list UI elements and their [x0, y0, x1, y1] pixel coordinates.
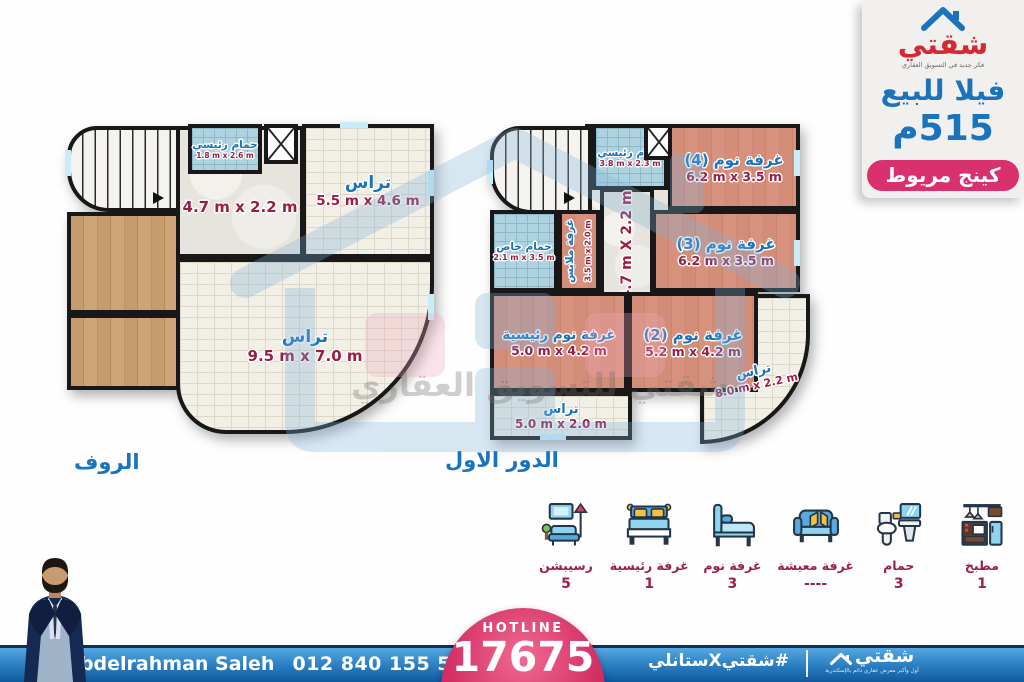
ff-corridor-dims: 4.7 m X 2.2 m	[619, 190, 635, 299]
legend-bathroom: حمام 3	[861, 500, 937, 592]
hotline-badge: HOTLINE 17675	[441, 608, 605, 682]
legend-row: رسيبشن 5 غرفة رئيسية 1 غرفة نوم 3 غرفة م…	[528, 500, 1020, 592]
legend-count: 3	[728, 576, 738, 592]
legend-icon	[956, 500, 1008, 552]
ff-terrace-bottom: تراس 5.0 m x 2.0 m	[490, 392, 632, 440]
legend-reception: رسيبشن 5	[528, 500, 604, 592]
ff-bedroom3-dims: 6.2 m x 3.5 m	[678, 253, 774, 268]
window	[340, 122, 368, 128]
footer-logo-name: شقتي	[855, 647, 914, 666]
ff-master-bedroom: غرفة نوم رئيسية 5.0 m x 4.2 m	[490, 292, 628, 392]
footer-divider	[806, 650, 808, 677]
roof-hall-dims: 4.7 m x 2.2 m	[180, 198, 300, 216]
legend-icon	[623, 500, 675, 552]
legend-icon	[706, 500, 758, 552]
ff-bedroom4: غرفة نوم (4) 6.2 m x 3.5 m	[668, 124, 800, 210]
roof-master-bath: حمام رئيسي 1.8 m x 2.6 m	[188, 124, 262, 174]
roof-master-bath-name: حمام رئيسي	[192, 139, 257, 151]
ff-bedroom4-name: غرفة نوم (4)	[684, 151, 783, 169]
campaign-hashtag: #شقتيXستانلي	[636, 651, 801, 671]
roof-staircase	[67, 126, 180, 212]
window	[794, 150, 800, 176]
legend-count: 1	[977, 576, 987, 592]
ff-bedroom2-dims: 5.2 m x 4.2 m	[645, 344, 741, 359]
location-badge: كينج مريوط	[867, 160, 1019, 191]
shaft-x-icon	[648, 128, 670, 156]
legend-label: غرفة رئيسية	[610, 558, 689, 573]
agent-photo	[4, 552, 104, 682]
shaft-x-icon	[268, 128, 294, 160]
first-floor-plan: حمام رئيسي 3.8 m x 2.3 m غرفة نوم (4) 6.…	[487, 116, 812, 450]
first-floor-plan-label: الدور الاول	[445, 448, 559, 472]
window	[428, 170, 434, 196]
roof-shaft	[264, 124, 298, 164]
roof-room-lower	[67, 314, 180, 390]
legend-icon	[540, 500, 592, 552]
legend-count: 5	[561, 576, 571, 592]
roof-room-upper	[67, 212, 180, 314]
roof-terrace-top: تراس 5.5 m x 4.6 m	[302, 124, 434, 258]
roof-terrace-top-name: تراس	[345, 173, 391, 193]
roof-terrace-big-name: تراس	[282, 327, 328, 347]
window	[540, 434, 566, 440]
ff-terrace-bottom-name: تراس	[543, 402, 578, 417]
logo-tagline: فكر جديد في التسويق العقاري	[902, 61, 984, 69]
legend-label: رسيبشن	[539, 558, 593, 573]
legend-label: حمام	[883, 558, 914, 573]
ff-dressing: غرفة ملابس 3.5 m x 2.0 m	[558, 210, 600, 292]
ff-bedroom4-dims: 6.2 m x 3.5 m	[686, 169, 782, 184]
roof-terrace-top-dims: 5.5 m x 4.6 m	[316, 193, 419, 209]
listing-area: 515م	[892, 109, 994, 149]
ff-bedroom3: غرفة نوم (3) 6.2 m x 3.5 m	[652, 210, 800, 292]
legend-count: 3	[894, 576, 904, 592]
ff-dressing-dims: 3.5 m x 2.0 m	[584, 220, 593, 281]
roof-terrace-big-dims: 9.5 m x 7.0 m	[248, 347, 363, 365]
roof-master-bath-dims: 1.8 m x 2.6 m	[196, 151, 253, 160]
agent-contact: Abdelrahman Saleh 012 840 155 56	[95, 648, 435, 679]
footer-logo: شقتي أول وأكبر معرض عقاري دائم بالإسكندر…	[820, 647, 924, 674]
ff-private-bath-dims: 2.1 m x 3.5 m	[493, 253, 554, 262]
logo-name: شقتي	[898, 30, 989, 59]
legend-single-bed: غرفة نوم 3	[694, 500, 770, 592]
agent-phone: 012 840 155 56	[292, 653, 464, 675]
legend-label: غرفة معيشة	[777, 558, 854, 573]
ff-staircase	[490, 126, 592, 214]
window	[794, 240, 800, 266]
ff-dressing-name: غرفة ملابس	[564, 219, 576, 283]
ff-private-bath-name: حمام خاص	[496, 241, 552, 253]
legend-kitchen: مطبخ 1	[944, 500, 1020, 592]
stairs-arrow-icon	[153, 192, 164, 204]
ff-bedroom3-name: غرفة نوم (3)	[676, 235, 775, 253]
header-card: شقتي فكر جديد في التسويق العقاري فيلا لل…	[862, 0, 1024, 198]
legend-label: غرفة نوم	[703, 558, 761, 573]
legend-count: 1	[644, 576, 654, 592]
flyer-page: 4.7 m x 2.2 m حمام رئيسي 1.8 m x 2.6 m ت…	[0, 0, 1024, 682]
ff-corridor: 4.7 m X 2.2 m	[600, 188, 654, 302]
footer-logo-tagline: أول وأكبر معرض عقاري دائم بالإسكندرية	[825, 668, 918, 674]
legend-icon	[873, 500, 925, 552]
listing-title: فيلا للبيع	[881, 76, 1006, 107]
window	[428, 294, 434, 320]
legend-label: مطبخ	[965, 558, 999, 573]
legend-count: ----	[804, 576, 827, 592]
window	[487, 160, 493, 184]
ff-terrace-bottom-dims: 5.0 m x 2.0 m	[515, 417, 607, 431]
hotline-number: 17675	[452, 637, 595, 678]
ff-master-bedroom-name: غرفة نوم رئيسية	[502, 327, 615, 343]
ff-bedroom2-name: غرفة نوم (2)	[643, 326, 742, 344]
roof-plan-label: الروف	[74, 450, 140, 474]
window	[65, 150, 71, 176]
stairs-arrow-icon	[564, 192, 575, 204]
ff-master-bedroom-dims: 5.0 m x 4.2 m	[511, 343, 607, 358]
roof-plan: 4.7 m x 2.2 m حمام رئيسي 1.8 m x 2.6 m ت…	[62, 118, 434, 448]
legend-sofa: غرفة معيشة ----	[778, 500, 854, 592]
legend-icon	[790, 500, 842, 552]
roof-terrace-big: تراس 9.5 m x 7.0 m	[176, 258, 434, 434]
legend-master-bed: غرفة رئيسية 1	[611, 500, 687, 592]
footer-logo-house-icon	[830, 652, 852, 666]
ff-private-bath: حمام خاص 2.1 m x 3.5 m	[490, 210, 558, 292]
